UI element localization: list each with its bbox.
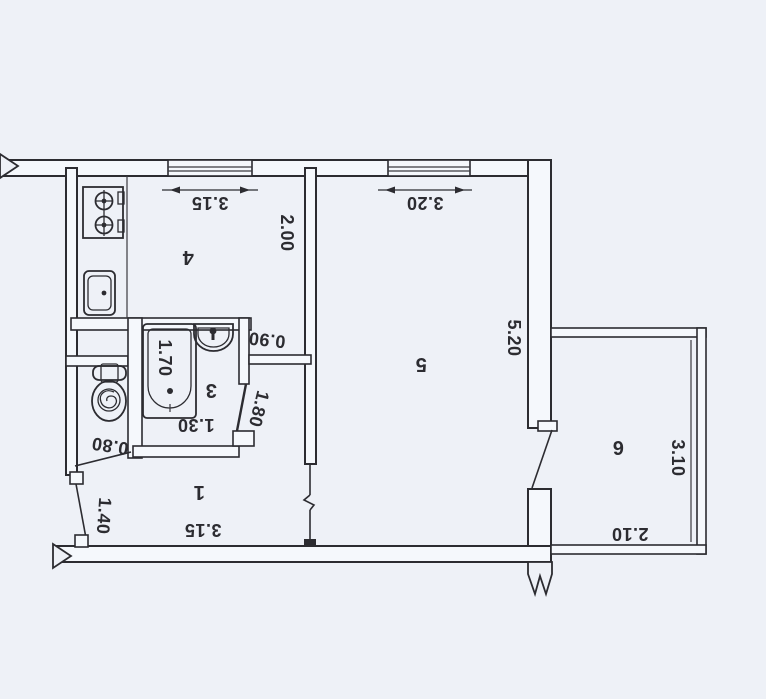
stove-icon bbox=[83, 187, 124, 238]
bath-bottom-wall bbox=[133, 446, 239, 457]
dim-label-hall-width: 3.15 bbox=[184, 520, 221, 540]
entry-door-jamb-top bbox=[70, 472, 83, 484]
dim-label-bath-door-wall: 1.80 bbox=[245, 389, 273, 430]
wall-junction-block bbox=[304, 539, 316, 547]
balcony-bottom-wall bbox=[551, 545, 706, 554]
dim-label-kitchen-width: 3.15 bbox=[191, 193, 228, 213]
right-wall-upper bbox=[528, 160, 551, 428]
bath-door-diagonal-wall bbox=[236, 384, 246, 436]
toilet-icon bbox=[92, 364, 126, 421]
room-number-5: 5 bbox=[415, 353, 427, 375]
entry-door-jamb-bottom bbox=[75, 535, 88, 547]
room-number-1: 1 bbox=[193, 481, 205, 503]
wc-bath-divider-wall bbox=[128, 318, 142, 458]
dim-label-balcony-width: 2.10 bbox=[611, 524, 648, 544]
entry-door-leaf bbox=[76, 484, 86, 538]
kitchen-room5-divider-wall bbox=[305, 168, 316, 464]
wc-top-wall bbox=[66, 356, 128, 366]
kitchen-window bbox=[168, 160, 252, 176]
dim-label-kitchen-depth: 2.00 bbox=[277, 214, 297, 251]
kitchen-sink-icon bbox=[84, 271, 115, 315]
bath-sink-icon bbox=[194, 324, 233, 351]
right-wall-lower bbox=[528, 489, 551, 546]
kitchen-width-arrow bbox=[162, 187, 258, 194]
dim-label-room5-depth: 5.20 bbox=[504, 319, 524, 356]
dim-label-wc-width: 0.80 bbox=[90, 433, 130, 459]
dim-label-entry-width: 1.40 bbox=[93, 497, 116, 535]
hall-room5-partition bbox=[304, 464, 316, 547]
room5-width-arrow bbox=[378, 187, 472, 194]
dim-label-room5-width: 3.20 bbox=[406, 193, 443, 213]
room-number-3: 3 bbox=[205, 379, 217, 401]
balcony-right-wall bbox=[697, 328, 706, 554]
room-number-4: 4 bbox=[182, 246, 194, 268]
entry-door bbox=[70, 472, 88, 547]
labels: 3.15 4 2.00 3.20 5 5.20 0.90 1.70 3 1.30… bbox=[90, 193, 688, 544]
dim-label-balcony-length: 3.10 bbox=[668, 439, 688, 476]
room-number-6: 6 bbox=[612, 436, 624, 458]
dim-label-bath-width: 1.30 bbox=[177, 415, 214, 435]
balcony-top-wall bbox=[551, 328, 706, 337]
floor-plan-drawing: 3.15 4 2.00 3.20 5 5.20 0.90 1.70 3 1.30… bbox=[0, 0, 766, 699]
room5-window bbox=[388, 160, 470, 176]
bath-right-wall bbox=[239, 318, 249, 384]
balcony-door-leaf bbox=[532, 430, 552, 488]
bottom-wall bbox=[55, 546, 551, 562]
balcony-door-jamb bbox=[538, 421, 557, 431]
kitchen-door-niche-wall bbox=[249, 355, 311, 364]
bottom-right-wall-break-icon bbox=[528, 562, 552, 594]
balcony-door bbox=[532, 421, 557, 488]
dim-label-bath-door: 0.90 bbox=[248, 328, 287, 352]
floor-plan-scan: 3.15 4 2.00 3.20 5 5.20 0.90 1.70 3 1.30… bbox=[0, 0, 766, 699]
dim-label-tub-length: 1.70 bbox=[155, 339, 175, 376]
bath-door-jamb bbox=[233, 431, 254, 446]
